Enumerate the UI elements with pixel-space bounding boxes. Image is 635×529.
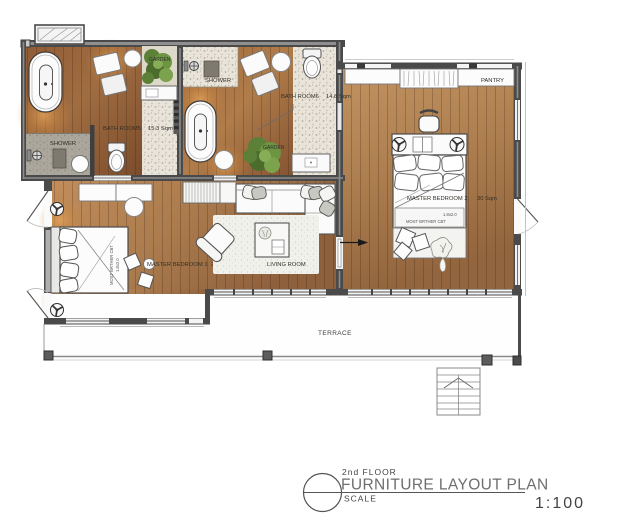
svg-text:30 Sqm: 30 Sqm [477,196,497,202]
svg-text:MOST BRTHER CBT: MOST BRTHER CBT [109,245,114,285]
svg-text:1.8x2.0: 1.8x2.0 [443,212,457,217]
svg-text:1.8x2.0: 1.8x2.0 [115,258,120,272]
svg-text:2nd FLOOR: 2nd FLOOR [342,467,397,477]
svg-text:1:100: 1:100 [535,495,585,512]
svg-text:15.3 Sqm: 15.3 Sqm [148,126,173,132]
svg-text:MOST BRTHER CBT: MOST BRTHER CBT [406,219,446,224]
svg-text:GARDEN: GARDEN [263,145,285,151]
svg-text:SHOWER: SHOWER [205,78,231,84]
svg-text:LIVING ROOM: LIVING ROOM [267,262,306,268]
svg-text:14.8 Sqm: 14.8 Sqm [326,94,351,100]
svg-text:BATH ROOM6: BATH ROOM6 [281,94,319,100]
svg-text:MASTER BEDROOM 1: MASTER BEDROOM 1 [147,262,208,268]
svg-text:BATH ROOM5: BATH ROOM5 [103,126,141,132]
svg-text:MASTER BEDROOM 2: MASTER BEDROOM 2 [407,196,468,202]
svg-text:SHOWER: SHOWER [50,141,76,147]
svg-text:SCALE: SCALE [344,494,377,504]
svg-text:FURNITURE LAYOUT PLAN: FURNITURE LAYOUT PLAN [341,477,549,494]
svg-text:PANTRY: PANTRY [481,78,504,84]
svg-text:GARDEN: GARDEN [149,57,171,63]
svg-text:TERRACE: TERRACE [318,330,352,337]
